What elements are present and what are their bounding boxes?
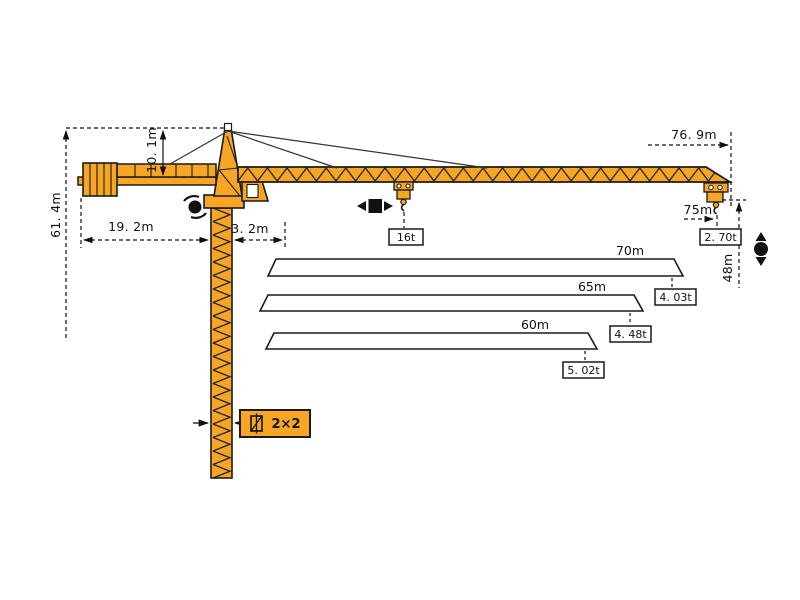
hook-height-label: 48m xyxy=(720,254,735,283)
operator-cab xyxy=(242,181,268,201)
tower-mast xyxy=(211,208,232,478)
tip-capacity-badge: 2. 70t xyxy=(700,229,741,245)
slewing-platform xyxy=(204,195,244,208)
bar-length-label: 60m xyxy=(521,317,549,332)
bar-capacity-label: 4. 03t xyxy=(659,291,692,304)
cab-window xyxy=(247,185,258,198)
tip-capacity-label: 2. 70t xyxy=(704,231,737,244)
jib xyxy=(238,167,730,182)
load-bar-60m: 60m 5. 02t xyxy=(266,317,604,378)
head-height-label: 10. 1m xyxy=(144,127,159,173)
crane-diagram: 61. 4m 10. 1m 19. 2m 3. 2m 76. 9m 75m 48… xyxy=(0,0,800,600)
dim-tip-radius: 75m xyxy=(684,202,713,219)
hook-leader-lines xyxy=(404,212,717,228)
bar-length-label: 70m xyxy=(616,243,644,258)
bar-capacity-label: 5. 02t xyxy=(567,364,600,377)
mid-trolley xyxy=(394,182,413,211)
bar-length-label: 65m xyxy=(578,279,606,294)
dim-mast-offset: 3. 2m xyxy=(231,221,285,248)
max-radius-label: 76. 9m xyxy=(671,127,717,142)
tower-height-label: 61. 4m xyxy=(48,192,63,238)
max-capacity-label: 16t xyxy=(397,231,416,244)
counterjib-length-label: 19. 2m xyxy=(108,219,154,234)
bar-capacity-label: 4. 48t xyxy=(614,328,647,341)
slewing-icon xyxy=(184,196,206,218)
mast-section-label: 2×2 xyxy=(272,417,301,432)
diagram-canvas: 61. 4m 10. 1m 19. 2m 3. 2m 76. 9m 75m 48… xyxy=(0,0,800,600)
trolley-travel-icon xyxy=(357,199,393,213)
hoisting-icon xyxy=(754,232,768,266)
counterweight xyxy=(83,163,117,196)
max-capacity-badge: 16t xyxy=(389,229,423,245)
tie-cables xyxy=(170,131,487,168)
hook-icon xyxy=(401,199,406,211)
mast-offset-label: 3. 2m xyxy=(231,221,269,236)
apex-pin xyxy=(225,124,232,131)
hook-icon xyxy=(713,202,718,214)
tip-radius-label: 75m xyxy=(684,202,713,217)
